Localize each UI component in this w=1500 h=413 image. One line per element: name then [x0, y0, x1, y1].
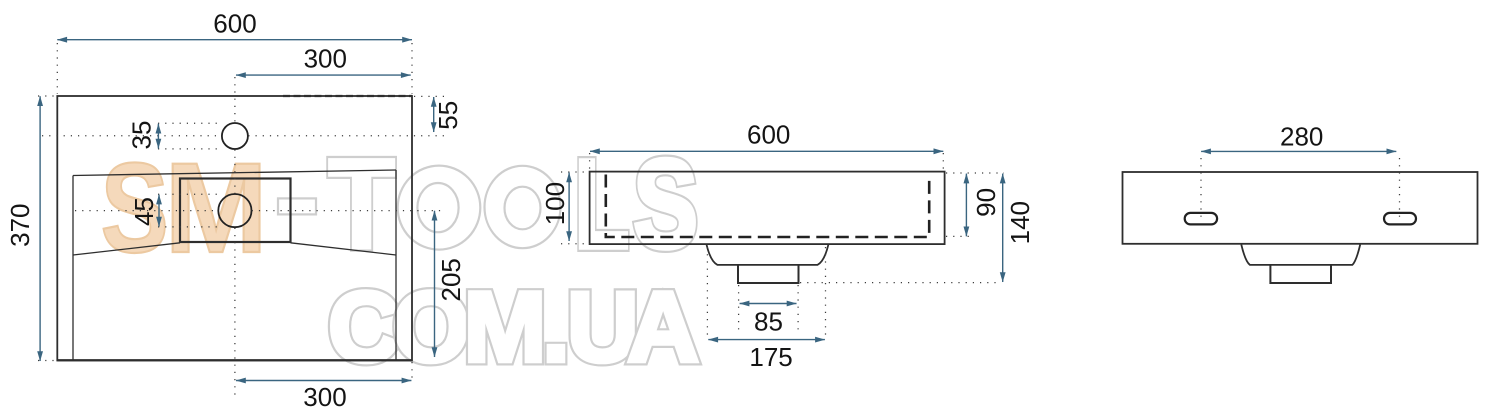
svg-text:85: 85: [754, 307, 783, 337]
svg-text:100: 100: [540, 182, 570, 225]
svg-text:600: 600: [213, 9, 256, 39]
svg-text:S: S: [633, 133, 698, 274]
svg-text:300: 300: [304, 44, 347, 74]
svg-text:140: 140: [1005, 201, 1035, 244]
svg-text:45: 45: [129, 197, 159, 226]
svg-text:.: .: [542, 271, 570, 382]
svg-text:600: 600: [747, 119, 790, 149]
svg-text:M: M: [464, 271, 546, 382]
svg-text:35: 35: [127, 121, 157, 150]
svg-text:A: A: [627, 271, 699, 382]
svg-text:280: 280: [1280, 121, 1323, 151]
svg-text:300: 300: [303, 382, 346, 412]
svg-text:205: 205: [436, 258, 466, 301]
svg-text:C: C: [328, 271, 400, 382]
svg-text:L: L: [575, 134, 630, 275]
svg-text:175: 175: [749, 342, 792, 372]
svg-text:55: 55: [433, 101, 463, 130]
svg-text:90: 90: [971, 188, 1001, 217]
svg-text:370: 370: [5, 204, 35, 247]
